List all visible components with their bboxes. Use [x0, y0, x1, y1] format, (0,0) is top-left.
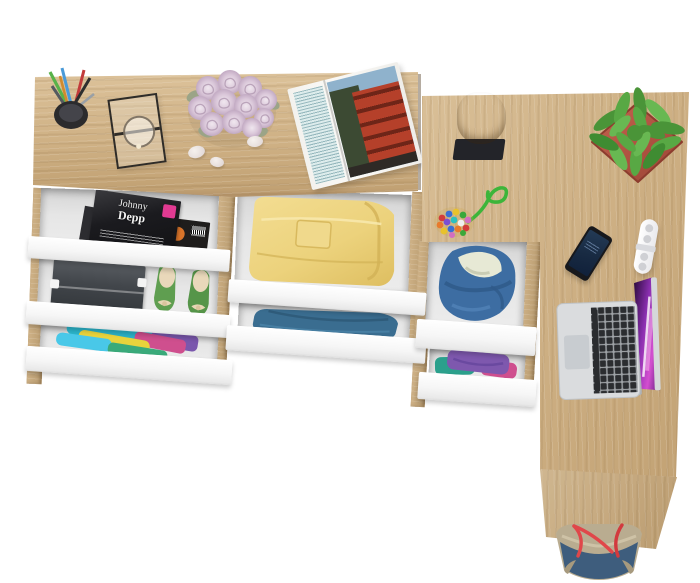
cable-clip-hole-2 [643, 234, 652, 243]
potted-plant [578, 80, 694, 186]
lantern-wick [136, 144, 142, 150]
drawer-interior-sweater [234, 189, 411, 293]
cable-clip-hole-1 [645, 224, 654, 233]
rose-bouquet [180, 66, 284, 154]
scene: Johnny Depp [0, 0, 700, 583]
laptop [554, 276, 664, 404]
smartphone-screen-glow [584, 240, 600, 254]
glass-lantern [107, 93, 166, 169]
cable-clip-clasp [635, 243, 656, 252]
desk-gap-shadow [418, 74, 421, 190]
magazine-price-badge [162, 204, 177, 219]
pen-cup [40, 62, 104, 134]
yellow-sweater [242, 193, 405, 291]
shoe-box-lid-line [52, 285, 144, 294]
denim-jacket [429, 240, 525, 330]
cable-clip-hole-3 [640, 252, 649, 261]
wood-stump [457, 92, 506, 144]
cable-clip-hole-4 [638, 262, 647, 271]
barcode [191, 225, 206, 237]
tote-bag [548, 512, 650, 583]
drawer-interior-jacket [425, 238, 527, 330]
shoe-box-corner-1 [50, 279, 60, 289]
bead-keychain [430, 178, 525, 240]
